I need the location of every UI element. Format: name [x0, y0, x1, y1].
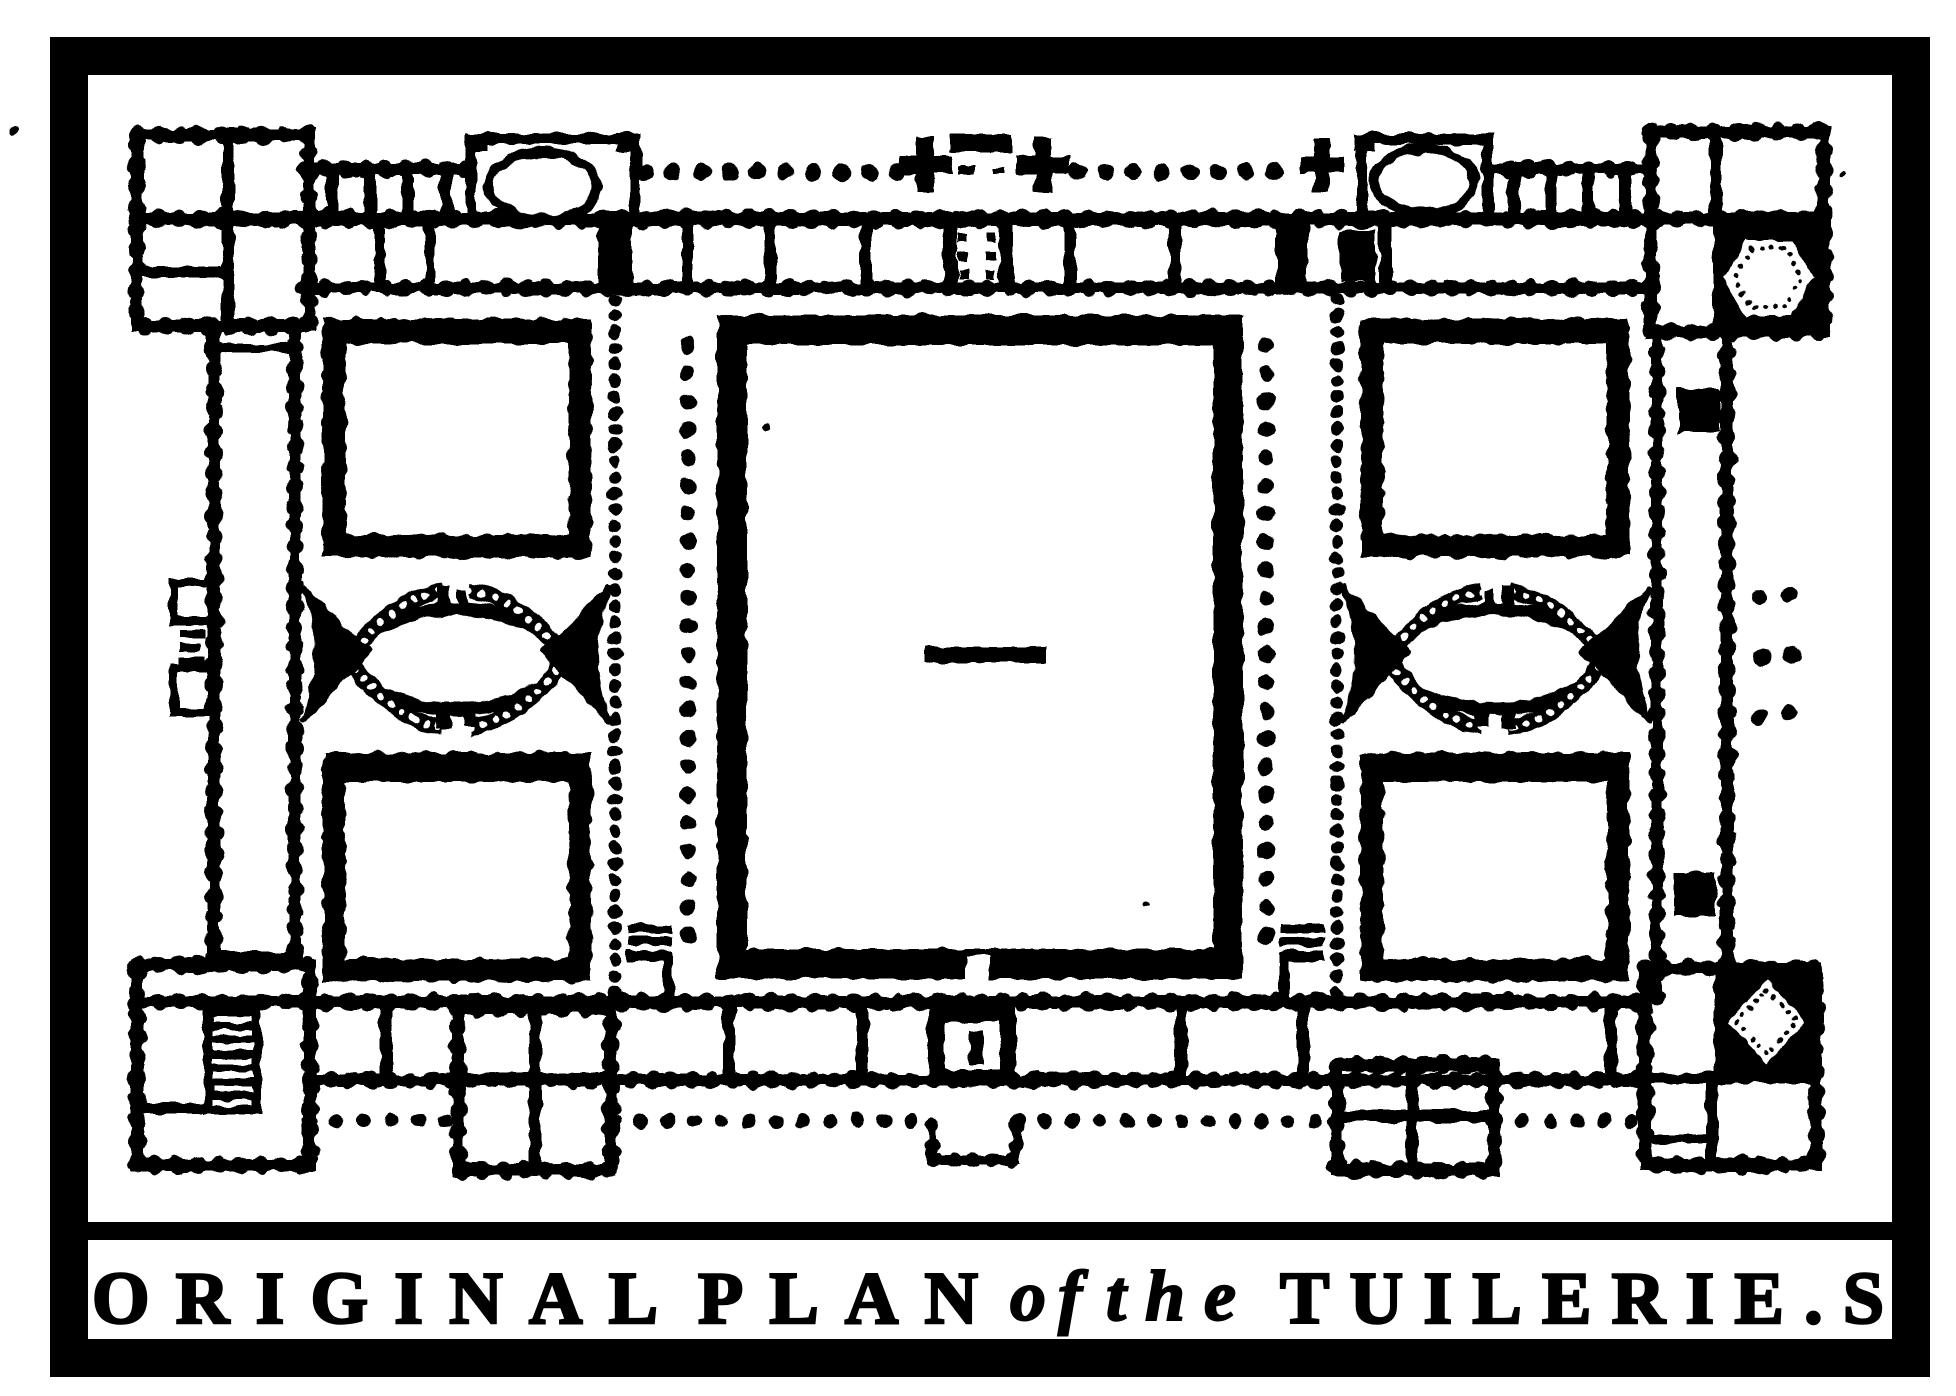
svg-text:the: the — [1106, 1256, 1236, 1336]
